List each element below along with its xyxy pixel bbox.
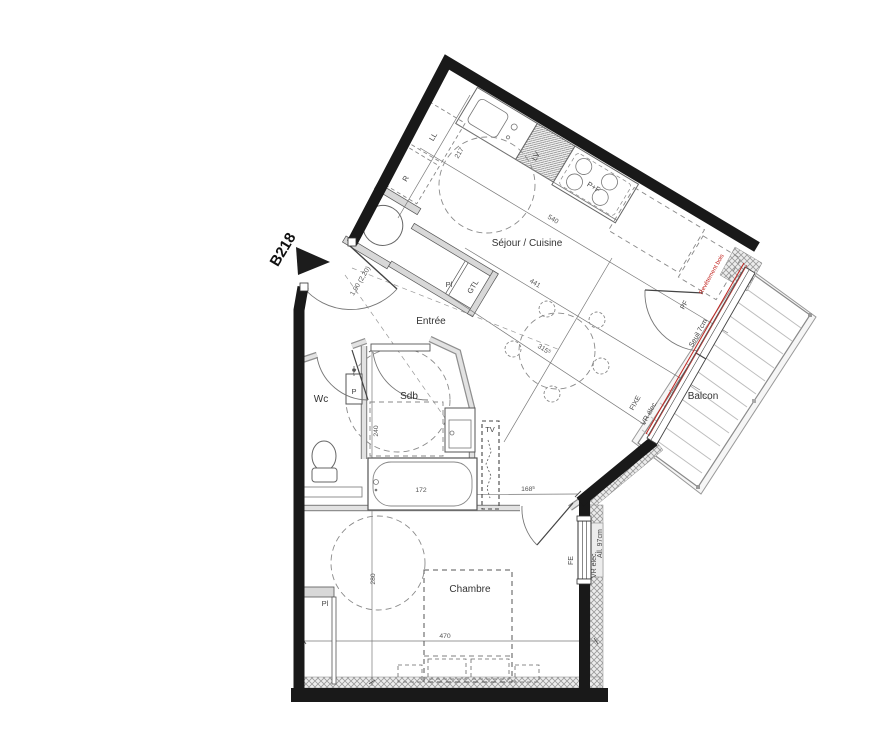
entry-closet xyxy=(389,223,499,316)
tv-label: TV xyxy=(485,425,495,434)
vr-elec-chambre-label: VR élec. xyxy=(591,551,598,578)
placard-entree-label: Pl xyxy=(446,280,453,289)
entree-label: Entrée xyxy=(416,316,446,327)
balcony: Balcon xyxy=(632,266,816,494)
dim-168: 1685 xyxy=(521,485,535,494)
wc-fixtures xyxy=(312,366,362,482)
lave-linge-label: LL xyxy=(427,131,439,143)
allege-label: All. 97cm xyxy=(597,529,604,558)
toilet xyxy=(312,441,336,471)
wc-label: Wc xyxy=(314,394,328,405)
unit-label: B218 xyxy=(267,230,300,269)
gtl-label: GTL xyxy=(465,278,480,295)
tv-cabinet xyxy=(482,421,499,509)
fixe-label: FIXE xyxy=(629,394,643,411)
washbasin-cabinet xyxy=(445,408,475,452)
dim-441: 441 xyxy=(528,278,542,290)
dim-240: 240 xyxy=(373,425,380,437)
refrigerateur-label: R xyxy=(400,173,411,183)
shower-zone xyxy=(370,402,443,456)
dim-172: 172 xyxy=(415,487,427,494)
labels: B218 Séjour / Cuisine Entrée Wc Sdb Cham… xyxy=(267,146,726,640)
placard-chambre-label: Pl xyxy=(322,599,329,608)
chambre-label: Chambre xyxy=(449,584,491,595)
sdb-label: Sdb xyxy=(400,391,418,402)
p-unit-label: P xyxy=(351,387,356,396)
bedroom-closet-front xyxy=(332,597,336,684)
sejour-label: Séjour / Cuisine xyxy=(492,238,563,249)
dim-540: 540 xyxy=(546,214,560,226)
entry-door-dim: 1,90 (2,20) xyxy=(349,265,372,297)
unit-arrow-icon xyxy=(296,247,330,275)
balcon-label: Balcon xyxy=(688,391,719,402)
floorplan-drawing: Balcon xyxy=(0,0,872,730)
floorplan-page: Balcon xyxy=(0,0,872,730)
fe-label: FE xyxy=(568,556,575,565)
dim-470: 470 xyxy=(439,633,451,640)
bathtub xyxy=(368,458,477,510)
wc-shelf xyxy=(300,487,362,497)
tv-zone xyxy=(482,421,499,509)
dim-280: 280 xyxy=(370,573,377,585)
dim-315: 3155 xyxy=(536,342,553,357)
